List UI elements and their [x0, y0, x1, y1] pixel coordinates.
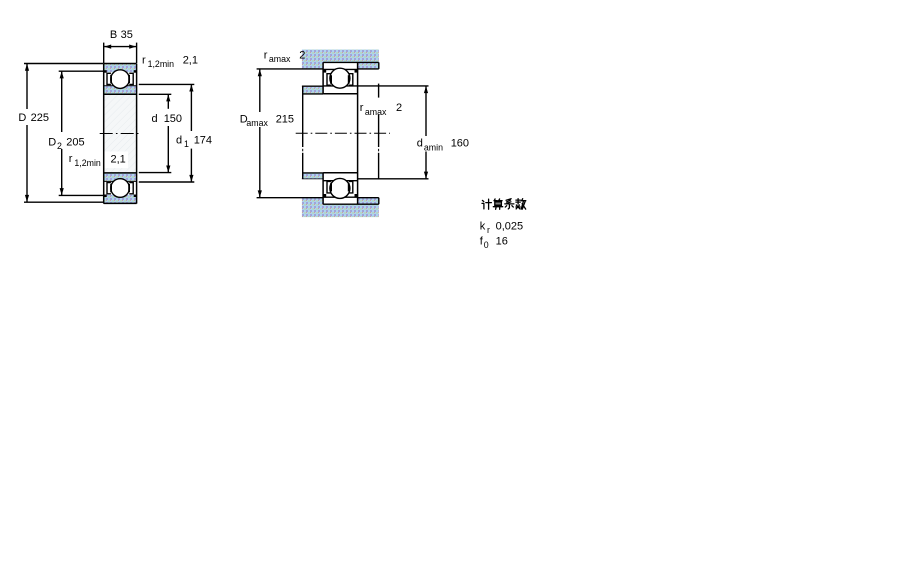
svg-text:2: 2: [396, 102, 402, 114]
svg-text:2: 2: [57, 141, 62, 151]
svg-text:1,2min: 1,2min: [74, 158, 101, 168]
svg-text:150: 150: [164, 113, 182, 125]
svg-text:r: r: [360, 102, 364, 114]
svg-text:215: 215: [276, 113, 294, 125]
svg-text:1,2min: 1,2min: [148, 59, 175, 69]
svg-text:d: d: [176, 135, 182, 147]
svg-text:amax: amax: [246, 118, 268, 128]
svg-text:2,1: 2,1: [183, 54, 198, 66]
svg-text:0,025: 0,025: [496, 221, 524, 233]
svg-text:160: 160: [451, 138, 469, 150]
svg-text:d: d: [417, 138, 423, 150]
svg-text:amin: amin: [424, 142, 443, 152]
svg-text:225: 225: [31, 112, 49, 124]
svg-text:r: r: [69, 153, 73, 165]
svg-text:205: 205: [66, 137, 84, 149]
svg-text:174: 174: [194, 135, 212, 147]
svg-text:1: 1: [184, 139, 189, 149]
svg-text:r: r: [142, 54, 146, 66]
svg-text:k: k: [480, 221, 486, 233]
svg-text:amax: amax: [365, 107, 387, 117]
svg-text:2,1: 2,1: [111, 154, 126, 166]
svg-text:D: D: [48, 137, 56, 149]
svg-text:r: r: [487, 225, 490, 235]
svg-text:B: B: [110, 29, 117, 41]
svg-text:0: 0: [484, 240, 489, 250]
svg-text:35: 35: [121, 29, 133, 41]
svg-text:D: D: [18, 112, 26, 124]
svg-text:r: r: [264, 49, 268, 61]
svg-text:amax: amax: [269, 54, 291, 64]
svg-text:d: d: [152, 113, 158, 125]
svg-text:16: 16: [496, 235, 508, 247]
svg-text:2: 2: [299, 49, 305, 61]
